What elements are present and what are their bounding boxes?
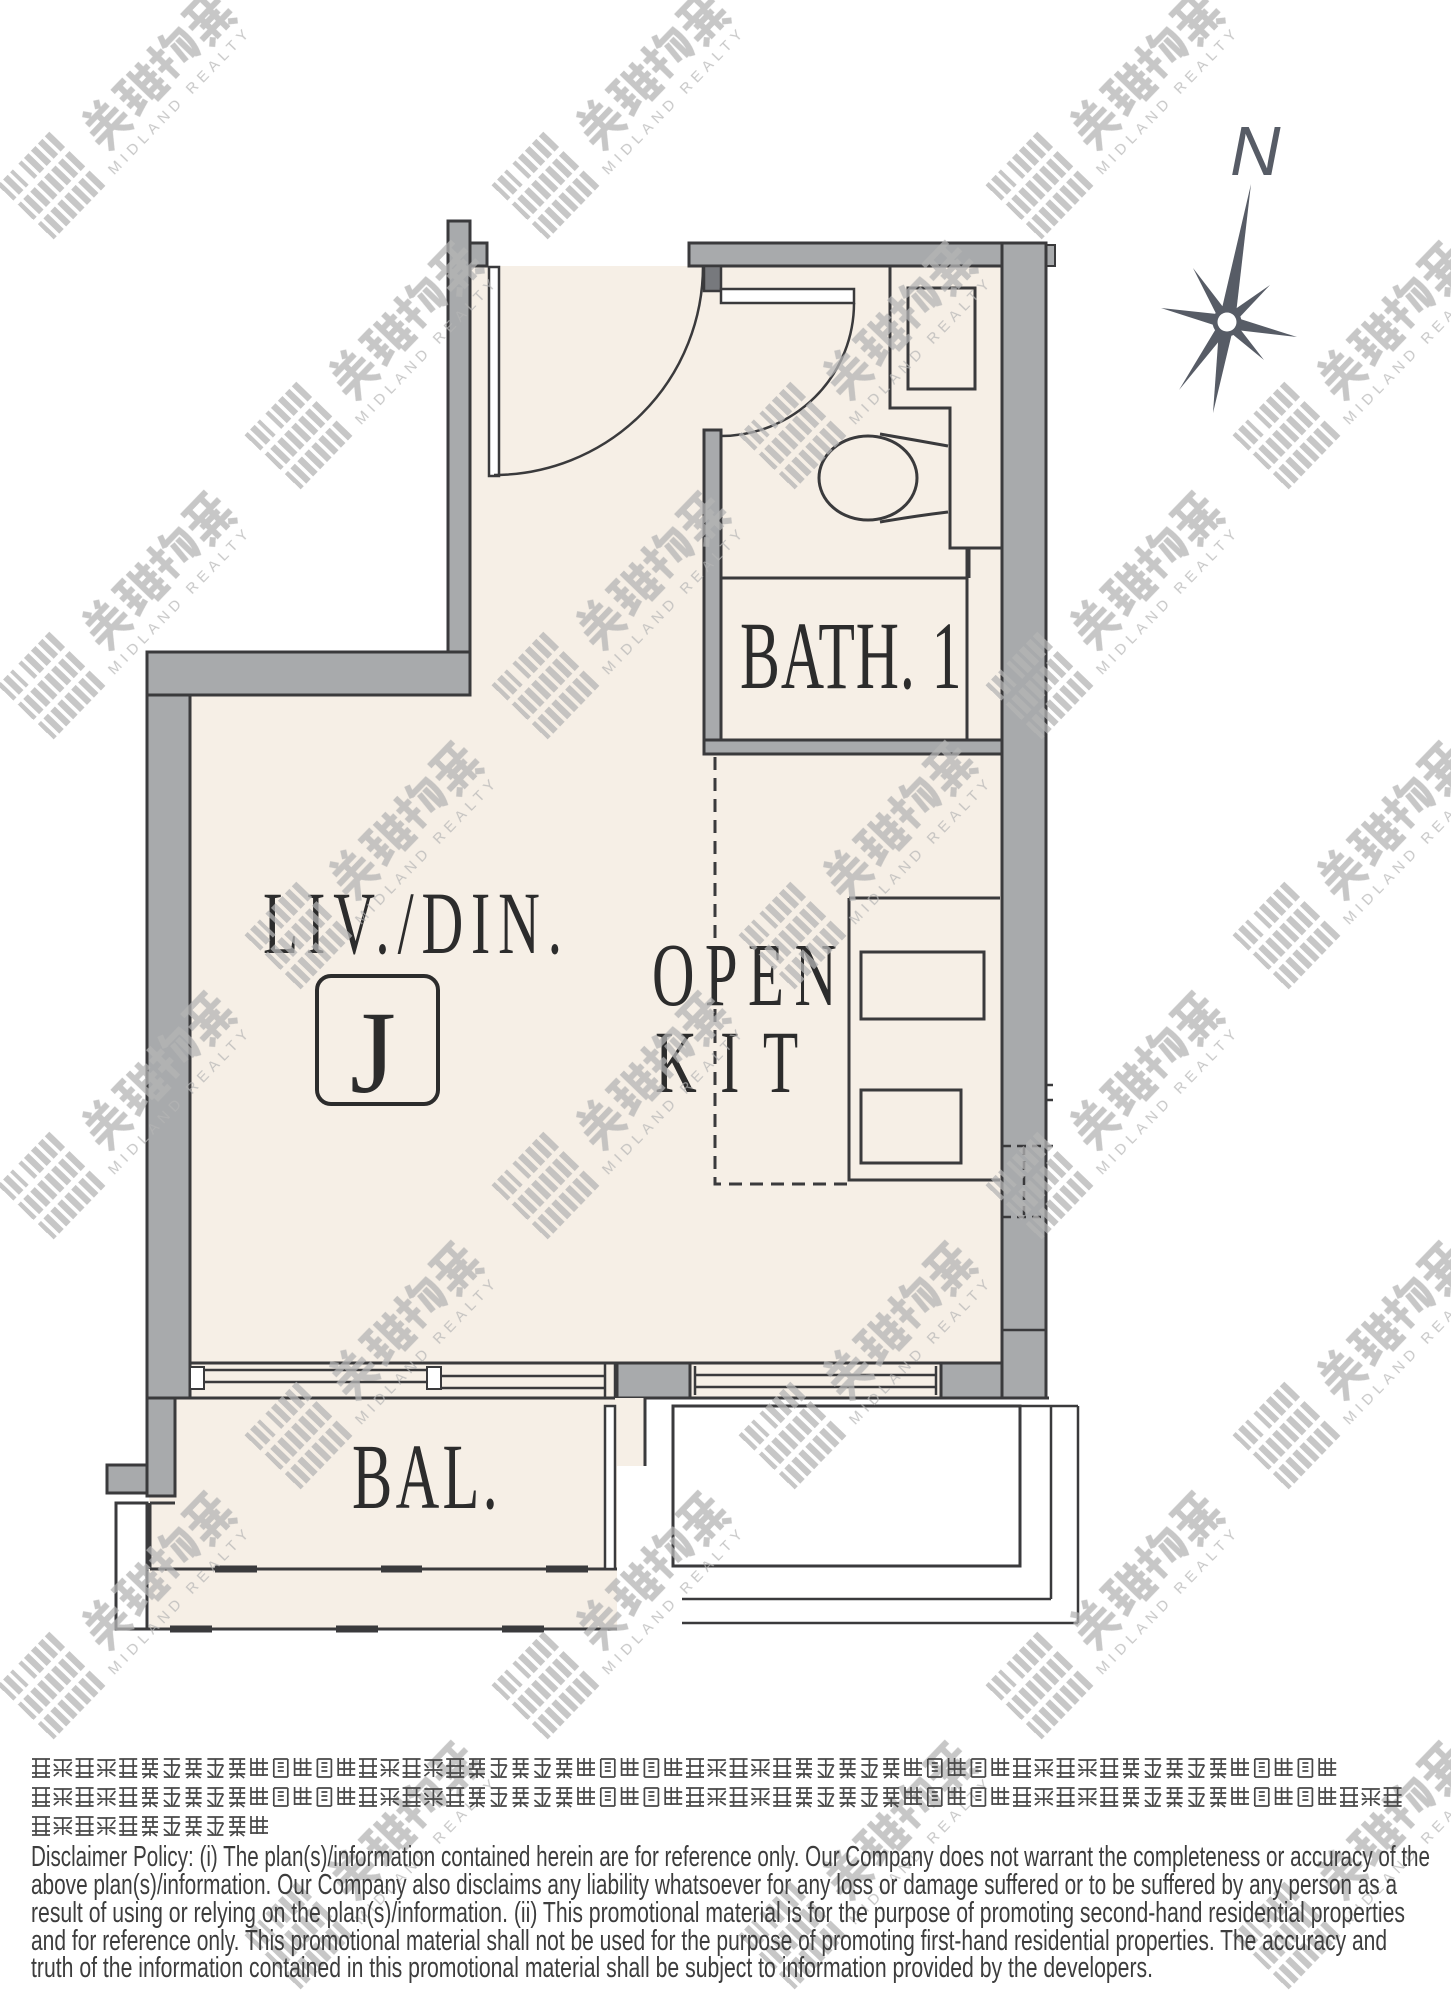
svg-text:BAL.: BAL. <box>352 1425 501 1528</box>
svg-text:J: J <box>350 987 396 1118</box>
svg-text:N: N <box>1230 112 1281 190</box>
svg-text:truth of the information conta: truth of the information contained in th… <box>31 1952 1153 1984</box>
svg-text:BATH. 1: BATH. 1 <box>740 603 963 710</box>
